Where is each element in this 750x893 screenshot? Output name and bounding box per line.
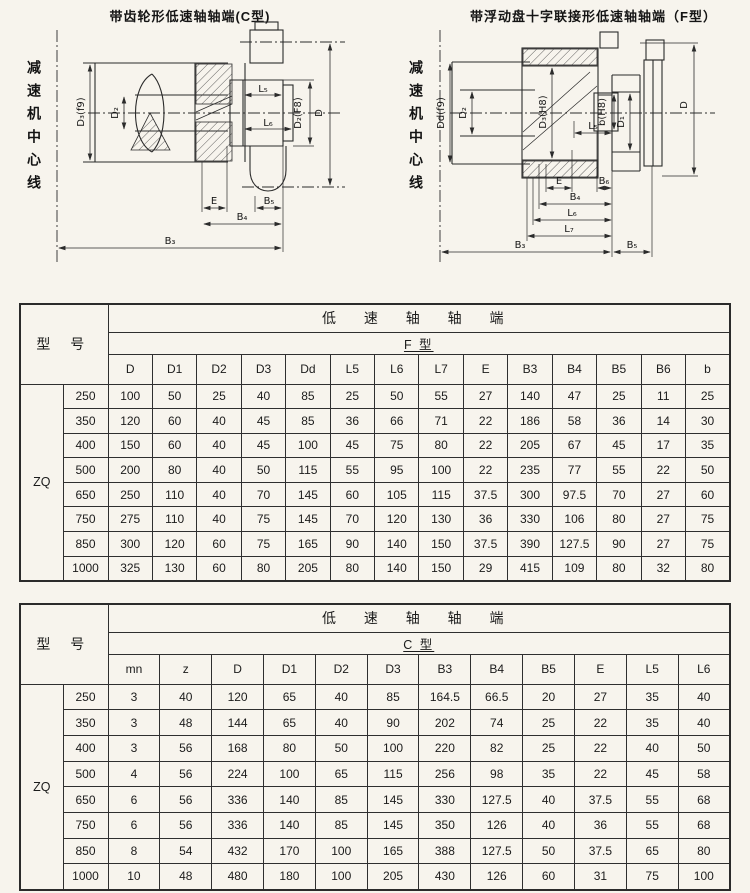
cell: 85 [286,409,330,434]
cell: 145 [367,812,419,838]
cell: 40 [197,409,241,434]
cell: 650 [63,787,108,813]
dim-label-l5-left: L₅ [258,84,268,95]
cell: 170 [264,838,316,864]
cell: 25 [523,735,575,761]
cell: 40 [197,433,241,458]
technical-drawings: D₃(f9) D₂ L₅ L₆ D₂(F8) D E B₅ B₄ B₃ [0,0,750,300]
dim-label-d1: D₁ [616,116,627,128]
cell: 50 [152,384,196,409]
cell: 80 [597,556,641,581]
dim-label-b3-right: B₃ [515,240,526,251]
cell: 60 [197,556,241,581]
cell: 205 [367,864,419,890]
cell: 45 [626,761,678,787]
cell: 45 [330,433,374,458]
col-header: D1 [152,354,196,384]
cell: 205 [508,433,552,458]
dim-label-l6-left: L₆ [263,118,273,129]
cell: 36 [463,507,507,532]
table-row: 3503481446540902027425223540 [20,710,730,736]
col-header: B6 [641,354,685,384]
cell: 50 [678,735,730,761]
cell: 500 [63,458,108,483]
cell: 40 [315,710,367,736]
cell: 45 [241,433,285,458]
cell: 14 [641,409,685,434]
cell: 325 [108,556,152,581]
cell: 65 [626,838,678,864]
cell: 1000 [63,864,108,890]
cell: 224 [212,761,264,787]
cell: 127.5 [471,787,523,813]
col-header: L6 [375,354,419,384]
cell: 150 [108,433,152,458]
model-header: 型 号 [20,304,108,384]
cell: 100 [108,384,152,409]
dim-label-e-left: E [211,196,217,207]
cell: 40 [197,482,241,507]
cell: 110 [152,482,196,507]
cell: 120 [212,684,264,710]
table-row: ZQ 250100502540852550552714047251125 [20,384,730,409]
table-row: 65065633614085145330127.54037.55568 [20,787,730,813]
table-c-type: 型 号 低 速 轴 轴 端 C 型 mn z D D1 D2 D3 B3 B4 … [19,603,731,891]
cell: 127.5 [552,532,596,557]
dim-label-b5-left: B₅ [264,196,275,207]
cell: 25 [523,710,575,736]
col-header: L7 [419,354,463,384]
col-header: D2 [315,654,367,684]
dim-label-d-right: D [679,101,690,109]
cell: 66 [375,409,419,434]
cell: 50 [523,838,575,864]
cell: 82 [471,735,523,761]
dim-label-b4-right: B₄ [570,192,581,203]
cell: 100 [678,864,730,890]
cell: 350 [419,812,471,838]
cell: 750 [63,812,108,838]
cell: 250 [108,482,152,507]
cell: 85 [315,812,367,838]
cell: 32 [641,556,685,581]
cell: 70 [330,507,374,532]
cell: 75 [375,433,419,458]
col-header: D3 [367,654,419,684]
cell: 17 [641,433,685,458]
cell: 300 [508,482,552,507]
cell: 37.5 [574,838,626,864]
col-header: E [574,654,626,684]
cell: 150 [419,532,463,557]
cell: 40 [197,507,241,532]
cell: 80 [152,458,196,483]
cell: 850 [63,532,108,557]
cell: 60 [152,433,196,458]
cell: 40 [678,710,730,736]
cell: 110 [152,507,196,532]
cell: 40 [197,458,241,483]
cell: 36 [597,409,641,434]
dim-label-l6-right: L₆ [567,208,577,219]
cell: 22 [574,735,626,761]
cell: 85 [286,384,330,409]
cell: 80 [597,507,641,532]
cell: 40 [678,684,730,710]
cell: 140 [264,787,316,813]
cell: 47 [552,384,596,409]
cell: 55 [597,458,641,483]
model-header: 型 号 [20,604,108,684]
cell: 90 [367,710,419,736]
cell: 336 [212,787,264,813]
dim-label-d-left: D [314,109,325,117]
cell: 8 [108,838,160,864]
cell: 75 [626,864,678,890]
cell: 75 [686,532,731,557]
col-header: z [160,654,212,684]
table-row: 10001048480180100205430126603175100 [20,864,730,890]
dim-label-d3h8: D₃(H8) [538,95,549,128]
table-row: 75027511040751457012013036330106802775 [20,507,730,532]
cell: 29 [463,556,507,581]
cell: 30 [686,409,731,434]
cell: 60 [330,482,374,507]
cell: 127.5 [471,838,523,864]
table-row: 40035616880501002208225224050 [20,735,730,761]
cell: 115 [419,482,463,507]
cell: 130 [152,556,196,581]
cell: 27 [641,507,685,532]
cell: 35 [626,710,678,736]
cell: 145 [286,507,330,532]
cell: 168 [212,735,264,761]
cell: 120 [375,507,419,532]
cell: 45 [241,409,285,434]
col-header: B4 [471,654,523,684]
cell: 180 [264,864,316,890]
figure-c-drawing: D₃(f9) D₂ L₅ L₆ D₂(F8) D E B₅ B₄ B₃ [57,22,345,262]
cell: 22 [641,458,685,483]
cell: 250 [63,384,108,409]
cell: 115 [286,458,330,483]
cell: 37.5 [574,787,626,813]
cell: 75 [241,532,285,557]
col-header: B4 [552,354,596,384]
type-header: F 型 [108,332,730,354]
table-row: 7506563361408514535012640365568 [20,812,730,838]
cell: 48 [160,864,212,890]
cell: 75 [241,507,285,532]
cell: 390 [508,532,552,557]
col-header: D2 [197,354,241,384]
cell: 40 [523,787,575,813]
cell: 25 [686,384,731,409]
cell: 100 [419,458,463,483]
table-row: 型 号 低 速 轴 轴 端 [20,604,730,632]
cell: 97.5 [552,482,596,507]
cell: 75 [686,507,731,532]
table-row: ZQ 250340120654085164.566.520273540 [20,684,730,710]
col-header: B5 [597,354,641,384]
table-row: 100032513060802058014015029415109803280 [20,556,730,581]
cell: 22 [574,761,626,787]
cell: 25 [330,384,374,409]
cell: 4 [108,761,160,787]
table-f-type: 型 号 低 速 轴 轴 端 F 型 D D1 D2 D3 Dd L5 L6 L7… [19,303,731,582]
table-row: 50020080405011555951002223577552250 [20,458,730,483]
cell: 85 [315,787,367,813]
cell: 205 [286,556,330,581]
cell: 430 [419,864,471,890]
cell: 20 [523,684,575,710]
cell: 10 [108,864,160,890]
group-header: 低 速 轴 轴 端 [108,304,730,332]
cell: 235 [508,458,552,483]
cell: 27 [574,684,626,710]
col-header: D [212,654,264,684]
cell: 200 [108,458,152,483]
cell: 500 [63,761,108,787]
cell: 55 [626,787,678,813]
series-cell: ZQ [20,684,63,890]
cell: 100 [286,433,330,458]
col-header: b [686,354,731,384]
cell: 100 [315,838,367,864]
cell: 55 [419,384,463,409]
cell: 37.5 [463,532,507,557]
cell: 56 [160,787,212,813]
cell: 22 [574,710,626,736]
cell: 40 [626,735,678,761]
cell: 56 [160,812,212,838]
dim-label-b3-left: B₃ [165,236,176,247]
cell: 45 [597,433,641,458]
cell: 300 [108,532,152,557]
cell: 120 [108,409,152,434]
cell: 90 [330,532,374,557]
cell: 145 [286,482,330,507]
cell: 80 [264,735,316,761]
col-header: L5 [626,654,678,684]
cell: 60 [523,864,575,890]
cell: 40 [315,684,367,710]
col-header: L6 [678,654,730,684]
dim-label-d3f9: D₃(f9) [76,97,87,126]
cell: 388 [419,838,471,864]
cell: 80 [678,838,730,864]
cell: 25 [597,384,641,409]
cell: 90 [597,532,641,557]
cell: 60 [197,532,241,557]
cell: 35 [523,761,575,787]
cell: 330 [508,507,552,532]
cell: 850 [63,838,108,864]
table-row: D D1 D2 D3 Dd L5 L6 L7 E B3 B4 B5 B6 b [20,354,730,384]
cell: 27 [463,384,507,409]
cell: 40 [241,384,285,409]
cell: 140 [264,812,316,838]
cell: 54 [160,838,212,864]
cell: 330 [419,787,471,813]
cell: 106 [552,507,596,532]
cell: 164.5 [419,684,471,710]
cell: 350 [63,710,108,736]
cell: 70 [597,482,641,507]
cell: 6 [108,787,160,813]
cell: 80 [686,556,731,581]
cell: 432 [212,838,264,864]
cell: 3 [108,684,160,710]
table-row: 350120604045853666712218658361430 [20,409,730,434]
cell: 36 [574,812,626,838]
col-header: mn [108,654,160,684]
cell: 165 [367,838,419,864]
cell: 126 [471,864,523,890]
cell: 11 [641,384,685,409]
cell: 22 [463,433,507,458]
cell: 74 [471,710,523,736]
cell: 22 [463,458,507,483]
cell: 55 [626,812,678,838]
cell: 37.5 [463,482,507,507]
cell: 66.5 [471,684,523,710]
cell: 27 [641,482,685,507]
cell: 80 [419,433,463,458]
cell: 115 [367,761,419,787]
group-header: 低 速 轴 轴 端 [108,604,730,632]
cell: 50 [375,384,419,409]
col-header: B5 [523,654,575,684]
dim-label-e-right: E [556,176,562,187]
cell: 400 [63,735,108,761]
table-row: 型 号 低 速 轴 轴 端 [20,304,730,332]
col-header: Dd [286,354,330,384]
cell: 65 [264,684,316,710]
cell: 100 [264,761,316,787]
dim-label-d2-right: D₂ [458,107,469,119]
cell: 130 [419,507,463,532]
cell: 109 [552,556,596,581]
cell: 70 [241,482,285,507]
cell: 22 [463,409,507,434]
cell: 77 [552,458,596,483]
dim-label-b6: B₆ [599,176,610,187]
cell: 27 [641,532,685,557]
cell: 1000 [63,556,108,581]
cell: 56 [160,761,212,787]
cell: 65 [315,761,367,787]
cell: 6 [108,812,160,838]
col-header: L5 [330,354,374,384]
cell: 55 [330,458,374,483]
table-row: F 型 [20,332,730,354]
cell: 150 [419,556,463,581]
table-row: 850854432170100165388127.55037.56580 [20,838,730,864]
dim-label-l7: L₇ [564,224,574,235]
table-row: mn z D D1 D2 D3 B3 B4 B5 E L5 L6 [20,654,730,684]
cell: 40 [523,812,575,838]
type-header: C 型 [108,632,730,654]
cell: 25 [197,384,241,409]
cell: 58 [678,761,730,787]
cell: 100 [315,864,367,890]
table-row: C 型 [20,632,730,654]
cell: 50 [686,458,731,483]
cell: 50 [241,458,285,483]
col-header: D [108,354,152,384]
series-cell: ZQ [20,384,63,581]
cell: 56 [160,735,212,761]
cell: 60 [686,482,731,507]
cell: 120 [152,532,196,557]
cell: 186 [508,409,552,434]
cell: 202 [419,710,471,736]
cell: 350 [63,409,108,434]
cell: 126 [471,812,523,838]
dim-label-b5-right: B₅ [627,240,638,251]
figure-f-drawing: Dd(f9) D₂ D₃(H8) L₅ b(H8) D₁ D E B₆ B₄ L… [436,30,715,262]
cell: 71 [419,409,463,434]
cell: 50 [315,735,367,761]
table-row: 500456224100651152569835224558 [20,761,730,787]
cell: 95 [375,458,419,483]
col-header: D1 [264,654,316,684]
cell: 100 [367,735,419,761]
dim-label-d2f8: D₂(F8) [293,97,304,129]
table-row: 4001506040451004575802220567451735 [20,433,730,458]
cell: 80 [330,556,374,581]
cell: 3 [108,735,160,761]
cell: 140 [508,384,552,409]
cell: 140 [375,532,419,557]
cell: 140 [375,556,419,581]
cell: 480 [212,864,264,890]
cell: 98 [471,761,523,787]
cell: 68 [678,812,730,838]
dim-label-d2-left: D₂ [110,107,121,119]
cell: 256 [419,761,471,787]
cell: 250 [63,684,108,710]
cell: 67 [552,433,596,458]
cell: 58 [552,409,596,434]
cell: 220 [419,735,471,761]
cell: 3 [108,710,160,736]
cell: 80 [241,556,285,581]
cell: 85 [367,684,419,710]
cell: 650 [63,482,108,507]
table-row: 85030012060751659014015037.5390127.59027… [20,532,730,557]
col-header: D3 [241,354,285,384]
cell: 144 [212,710,264,736]
cell: 35 [626,684,678,710]
cell: 400 [63,433,108,458]
cell: 415 [508,556,552,581]
cell: 275 [108,507,152,532]
cell: 60 [152,409,196,434]
cell: 36 [330,409,374,434]
cell: 40 [160,684,212,710]
cell: 65 [264,710,316,736]
cell: 48 [160,710,212,736]
col-header: B3 [508,354,552,384]
cell: 35 [686,433,731,458]
table-row: 65025011040701456010511537.530097.570276… [20,482,730,507]
cell: 750 [63,507,108,532]
col-header: E [463,354,507,384]
cell: 31 [574,864,626,890]
dim-label-bh8: b(H8) [597,98,608,126]
